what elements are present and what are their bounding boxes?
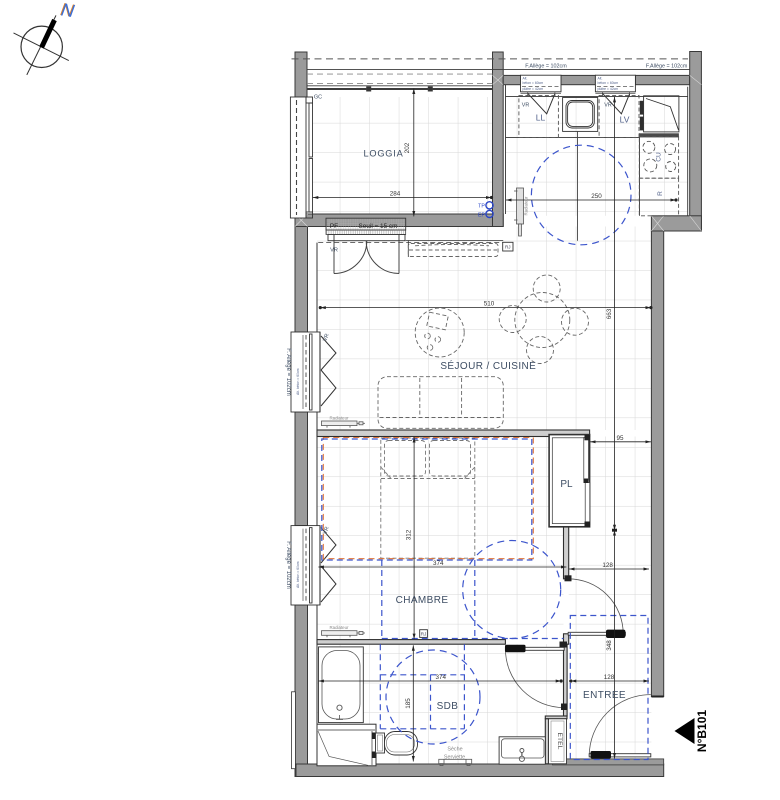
svg-text:LOGGIA: LOGGIA bbox=[363, 149, 403, 159]
svg-text:348: 348 bbox=[606, 640, 613, 651]
svg-text:CHAMBRE: CHAMBRE bbox=[396, 595, 449, 606]
svg-text:Seuil = 15 cm: Seuil = 15 cm bbox=[359, 223, 398, 230]
svg-text:374: 374 bbox=[436, 674, 447, 681]
svg-text:312: 312 bbox=[406, 529, 413, 540]
svg-text:374: 374 bbox=[433, 560, 444, 567]
svg-text:VR: VR bbox=[604, 103, 612, 109]
svg-text:Radiateur: Radiateur bbox=[524, 196, 529, 216]
svg-text:Alt.: Alt. bbox=[598, 77, 603, 81]
svg-text:SDB: SDB bbox=[437, 701, 459, 712]
svg-text:F.Allège = 102cm: F.Allège = 102cm bbox=[525, 64, 567, 70]
svg-text:250: 250 bbox=[591, 193, 602, 200]
svg-text:284: 284 bbox=[390, 190, 401, 197]
svg-text:plâtre = 42cm: plâtre = 42cm bbox=[598, 87, 619, 91]
svg-text:EP: EP bbox=[478, 213, 485, 219]
svg-text:N°B101: N°B101 bbox=[695, 710, 709, 752]
svg-text:VR: VR bbox=[522, 103, 530, 109]
svg-text:510: 510 bbox=[484, 301, 495, 308]
svg-text:RJ: RJ bbox=[505, 245, 511, 250]
svg-text:Sèche: Sèche bbox=[447, 747, 462, 753]
svg-text:663: 663 bbox=[606, 308, 613, 319]
svg-text:béton = 60cm: béton = 60cm bbox=[523, 81, 544, 85]
svg-text:béton = 60cm: béton = 60cm bbox=[598, 81, 619, 85]
svg-text:185: 185 bbox=[405, 698, 412, 709]
svg-text:202: 202 bbox=[404, 142, 411, 153]
svg-text:PL: PL bbox=[560, 479, 573, 490]
svg-text:GC: GC bbox=[314, 95, 322, 101]
svg-text:LL: LL bbox=[536, 113, 546, 123]
svg-text:R: R bbox=[657, 191, 664, 196]
svg-text:Serviette: Serviette bbox=[444, 755, 465, 761]
svg-text:128: 128 bbox=[604, 674, 615, 681]
svg-text:ENTREE: ENTREE bbox=[583, 690, 626, 701]
svg-text:RJ: RJ bbox=[421, 631, 427, 636]
svg-text:TP: TP bbox=[478, 204, 485, 210]
svg-text:Radiateur: Radiateur bbox=[329, 625, 349, 630]
svg-text:Alt.: Alt. bbox=[523, 77, 528, 81]
svg-text:Alt. béton = 60cm: Alt. béton = 60cm bbox=[296, 368, 300, 395]
svg-text:95: 95 bbox=[616, 435, 624, 442]
svg-text:F. Allège = 102cm: F. Allège = 102cm bbox=[285, 541, 291, 589]
svg-text:LV: LV bbox=[620, 115, 630, 125]
svg-text:Alt. béton = 60cm: Alt. béton = 60cm bbox=[296, 561, 300, 588]
svg-text:F. Allège = 102cm: F. Allège = 102cm bbox=[285, 348, 291, 396]
svg-text:ETEL: ETEL bbox=[556, 733, 563, 750]
svg-text:CU: CU bbox=[656, 152, 663, 162]
svg-text:plâtre = 42cm: plâtre = 42cm bbox=[523, 87, 544, 91]
svg-text:PF: PF bbox=[330, 223, 338, 230]
svg-text:F.Allège = 102cm: F.Allège = 102cm bbox=[646, 64, 688, 70]
svg-text:128: 128 bbox=[602, 562, 613, 569]
svg-text:Radiateur: Radiateur bbox=[329, 416, 349, 421]
svg-text:SÉJOUR / CUISINE: SÉJOUR / CUISINE bbox=[440, 359, 536, 372]
svg-text:VR: VR bbox=[330, 248, 338, 254]
